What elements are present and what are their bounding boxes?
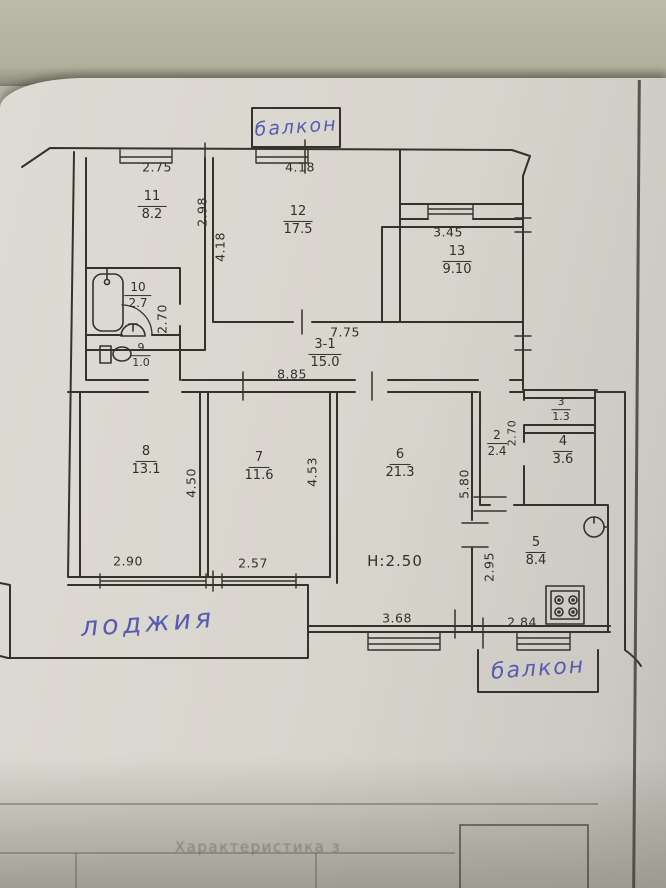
room-area: 13.1 xyxy=(132,462,161,478)
room-label-corridor: 3-1 15.0 xyxy=(308,338,341,370)
faded-table-line xyxy=(0,803,598,805)
faded-table-line xyxy=(75,853,77,888)
room-label-13: 13 9.10 xyxy=(443,245,472,277)
room-number: 3-1 xyxy=(308,338,341,355)
room-number: 12 xyxy=(284,205,313,222)
dim-room11-top: 2.75 xyxy=(142,160,172,175)
room-label-8: 8 13.1 xyxy=(132,445,161,477)
room-label-3: 3 1.3 xyxy=(552,396,571,424)
bathtub-icon xyxy=(93,268,123,331)
room-area: 8.4 xyxy=(526,553,547,569)
dim-kitchen-window: 2.84 xyxy=(507,615,537,630)
room-label-2: 2 2.4 xyxy=(487,429,507,459)
room-label-6: 6 21.3 xyxy=(386,448,415,480)
toilet-icon xyxy=(100,346,131,363)
dim-room7-height: 4.53 xyxy=(305,457,320,487)
walls xyxy=(0,108,641,692)
dim-room6-window: 3.68 xyxy=(382,611,412,626)
dim-room2-height: 2.70 xyxy=(506,420,519,447)
room-number: 6 xyxy=(390,448,410,465)
room-area: 8.2 xyxy=(138,207,167,223)
room-area: 3.6 xyxy=(553,452,574,468)
room-number: 11 xyxy=(138,190,167,207)
room-area: 9.10 xyxy=(443,262,472,278)
room-number: 8 xyxy=(136,445,156,462)
dim-room7-bottom: 2.57 xyxy=(238,556,268,571)
dim-corridor-bottom: 8.85 xyxy=(277,367,307,382)
dim-room13-top: 3.45 xyxy=(433,225,463,240)
dim-room12-left: 4.18 xyxy=(213,232,228,262)
room-label-7: 7 11.6 xyxy=(245,451,274,483)
room-area: 11.6 xyxy=(245,468,274,484)
dim-bath-corridor: 2.70 xyxy=(155,304,170,334)
dim-kitchen-left: 2.95 xyxy=(482,552,497,582)
faded-stamp-box xyxy=(459,824,589,888)
room-area: 15.0 xyxy=(308,355,341,371)
room-area: 17.5 xyxy=(284,222,313,238)
room-number: 7 xyxy=(249,451,269,468)
dim-balcony-window: 4.18 xyxy=(285,160,315,175)
room-number: 2 xyxy=(487,429,507,444)
dim-room8-height: 4.50 xyxy=(184,468,199,498)
room-number: 4 xyxy=(553,435,573,452)
dim-corridor-top: 7.75 xyxy=(330,325,360,340)
room-label-11: 11 8.2 xyxy=(138,190,167,222)
dim-room11-right: 2.98 xyxy=(195,197,210,227)
dim-room8-bottom: 2.90 xyxy=(113,554,143,569)
ceiling-height-label: H:2.50 xyxy=(367,552,423,570)
room-number: 10 xyxy=(124,281,151,296)
room-number: 3 xyxy=(552,396,571,410)
room-label-12: 12 17.5 xyxy=(284,205,313,237)
room-area: 2.4 xyxy=(487,445,507,459)
room-label-5: 5 8.4 xyxy=(526,536,547,568)
footer-heading: Характеристика з xyxy=(175,838,341,856)
room-number: 9 xyxy=(132,342,151,356)
windows xyxy=(100,150,570,650)
room-area: 1.0 xyxy=(132,357,151,370)
room-area: 21.3 xyxy=(386,465,415,481)
dim-room6-height: 5.80 xyxy=(457,469,472,499)
faded-table-line xyxy=(315,853,317,888)
room-label-9: 9 1.0 xyxy=(132,342,151,370)
scanned-floor-plan-photo: балкон лоджия балкон 11 8.2 12 17.5 13 9… xyxy=(0,0,666,888)
stove-icon xyxy=(546,586,584,624)
kitchen-sink-icon xyxy=(584,517,608,537)
room-area: 1.3 xyxy=(552,411,571,424)
room-number: 13 xyxy=(443,245,472,262)
room-label-4: 4 3.6 xyxy=(553,435,574,467)
room-number: 5 xyxy=(526,536,546,553)
room-label-10: 10 2.7 xyxy=(124,281,151,311)
washbasin-icon xyxy=(121,324,145,336)
room-area: 2.7 xyxy=(124,297,151,311)
